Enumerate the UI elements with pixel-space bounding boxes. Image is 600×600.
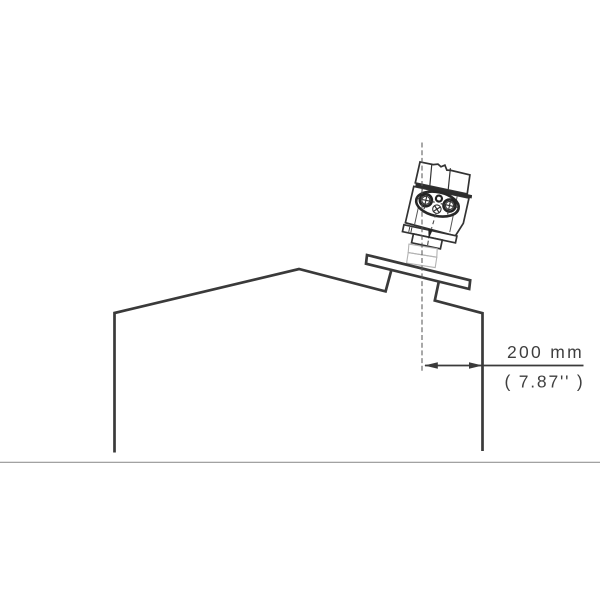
svg-text:200 mm: 200 mm — [507, 342, 584, 362]
svg-text:( 7.87'' ): ( 7.87'' ) — [504, 372, 584, 392]
